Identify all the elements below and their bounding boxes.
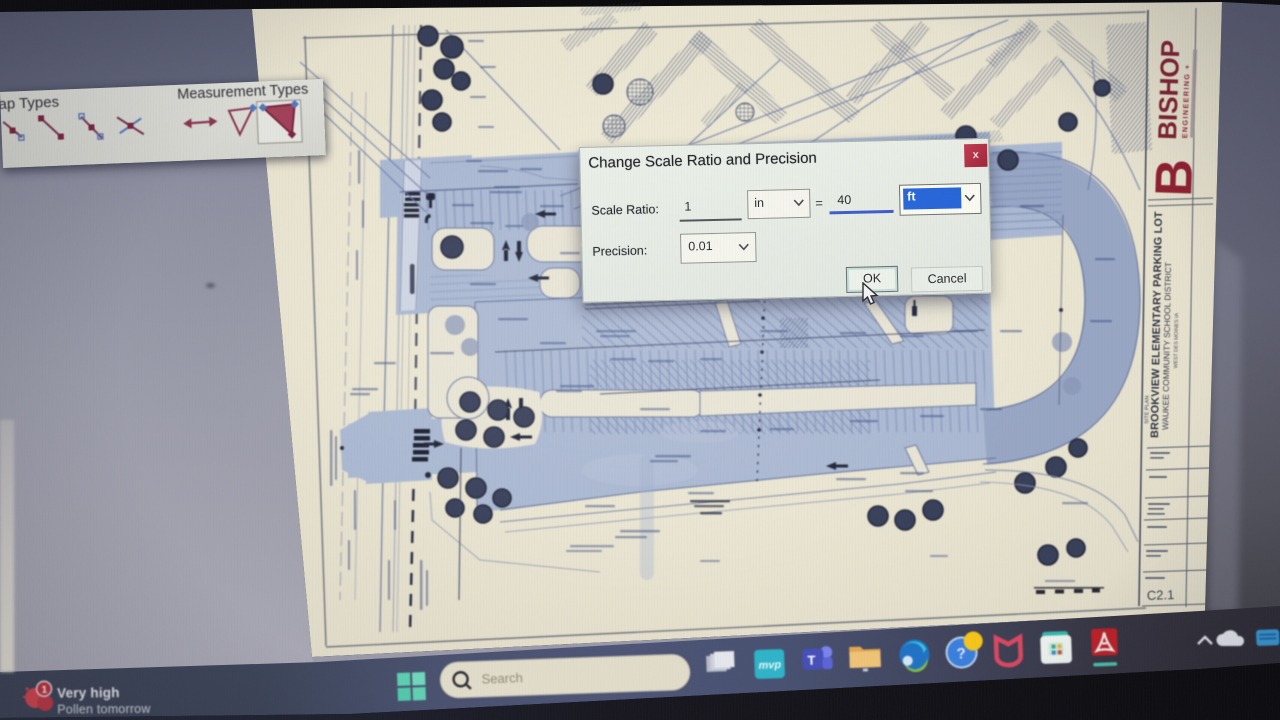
svg-text:Very high: Very high — [57, 685, 120, 701]
svg-text:Search: Search — [481, 670, 523, 686]
svg-text:C2.1: C2.1 — [1147, 587, 1175, 603]
svg-text:T: T — [807, 653, 816, 668]
svg-text:WEST DES MOINES IA: WEST DES MOINES IA — [1173, 312, 1180, 368]
svg-text:B: B — [1145, 158, 1204, 198]
svg-text:Pollen tomorrow: Pollen tomorrow — [57, 702, 151, 717]
svg-text:?: ? — [956, 645, 966, 662]
svg-text:1: 1 — [42, 685, 48, 696]
svg-text:mvp: mvp — [758, 659, 781, 672]
